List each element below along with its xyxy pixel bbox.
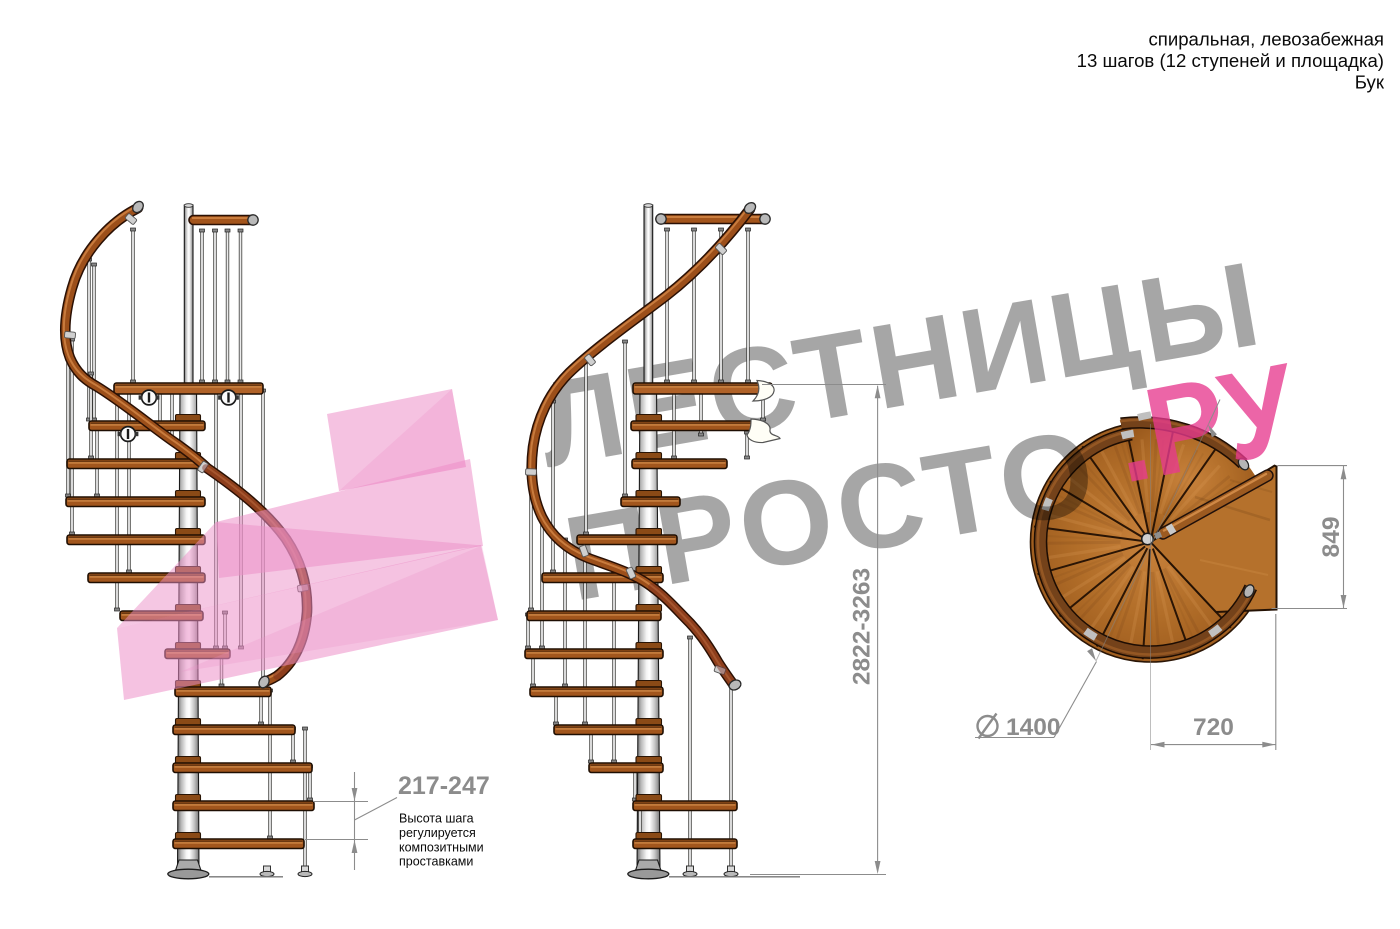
- svg-text:720: 720: [1193, 714, 1234, 741]
- svg-text:849: 849: [1318, 517, 1345, 558]
- svg-text:Высота шага: Высота шага: [399, 812, 474, 826]
- svg-text:217-247: 217-247: [398, 772, 490, 800]
- svg-text:композитными: композитными: [399, 840, 484, 854]
- svg-text:13 шагов (12 ступеней и площад: 13 шагов (12 ступеней и площадка): [1077, 50, 1384, 71]
- svg-text:2822-3263: 2822-3263: [849, 568, 876, 685]
- svg-text:1400: 1400: [1006, 714, 1061, 741]
- svg-text:спиральная, левозабежная: спиральная, левозабежная: [1148, 29, 1384, 50]
- svg-text:проставками: проставками: [399, 855, 473, 869]
- svg-text:регулируется: регулируется: [399, 826, 476, 840]
- svg-text:Бук: Бук: [1355, 72, 1385, 93]
